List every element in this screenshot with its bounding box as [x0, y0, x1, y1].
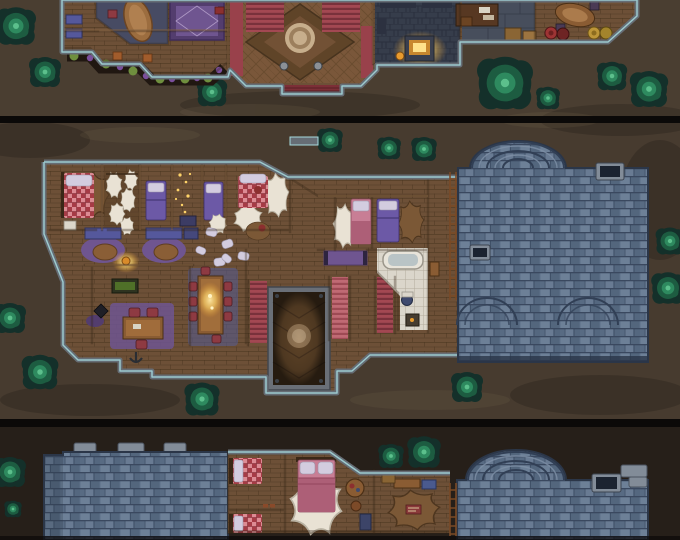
section-divider: [0, 419, 680, 427]
slippers: [270, 504, 275, 508]
flower-pot: [113, 52, 122, 60]
chair: [108, 10, 117, 18]
hall-red-runner: [230, 2, 243, 76]
crate: [382, 475, 395, 483]
shelf: [430, 262, 439, 276]
chair: [136, 340, 147, 349]
hall-pillar: [314, 62, 322, 70]
wall-stub: [290, 137, 318, 145]
crate: [505, 28, 521, 40]
leather-pouf: [154, 244, 178, 260]
staircase: [332, 277, 348, 339]
skylight: [470, 245, 490, 260]
dining-room: [188, 267, 238, 346]
table: [394, 479, 420, 488]
left-roof: [44, 443, 228, 540]
chair: [461, 17, 472, 26]
chair: [590, 2, 599, 10]
staircase: [250, 281, 267, 343]
section-divider: [0, 116, 680, 123]
staircase: [322, 2, 360, 32]
purple-carpet-room: [170, 2, 224, 40]
chest: [180, 216, 196, 226]
stool: [351, 501, 361, 511]
book: [483, 15, 494, 20]
red-cushion: [254, 186, 262, 194]
crucible: [396, 52, 404, 60]
red-chest: [215, 7, 224, 14]
book: [479, 7, 490, 13]
corner-stones: [621, 465, 647, 477]
battle-map-canvas: [0, 0, 680, 540]
chair: [129, 308, 140, 317]
skylight: [596, 163, 624, 180]
hall-pillar: [280, 62, 288, 70]
barrel: [557, 28, 569, 40]
bench: [66, 15, 82, 24]
pelt-closet: [104, 165, 140, 238]
blue-chest: [422, 480, 436, 489]
nightstand: [64, 221, 76, 230]
bench: [360, 514, 371, 530]
hall-runner: [324, 251, 367, 265]
hall-red-runner: [361, 26, 373, 78]
forge-room: [375, 0, 460, 69]
main-roof: [450, 141, 648, 362]
bottom-edge: [0, 536, 680, 540]
skylight: [592, 474, 621, 492]
flower-pot: [143, 54, 152, 62]
staircase: [246, 2, 284, 32]
chair: [147, 308, 158, 317]
stairwell-opening: [268, 287, 330, 390]
slippers: [263, 504, 268, 508]
patterned-mat: [406, 505, 421, 514]
bedroom-purple: [146, 181, 166, 220]
study-desk: [456, 4, 498, 26]
tea-table: [346, 479, 364, 497]
corner-stones: [629, 477, 647, 487]
battle-map: [0, 0, 680, 540]
